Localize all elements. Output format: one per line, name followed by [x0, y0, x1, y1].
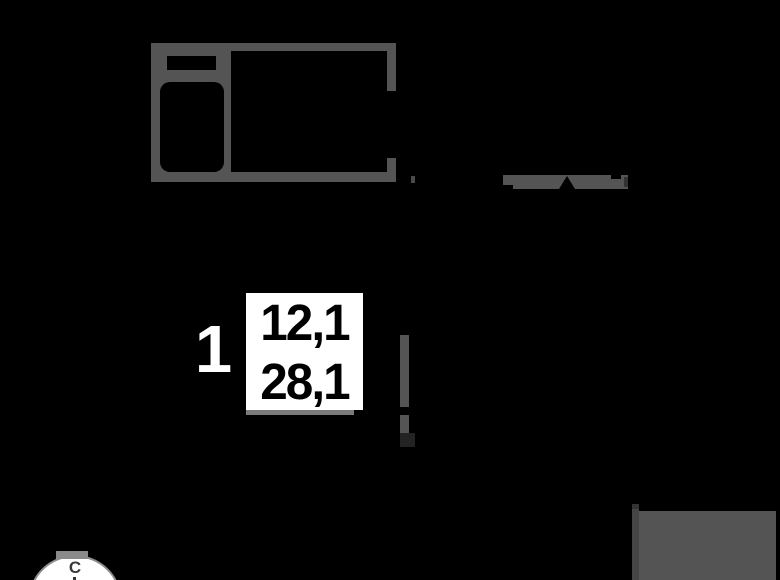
stairs-notch-left — [503, 185, 513, 189]
partition-wall-upper — [400, 335, 409, 407]
wall-top — [231, 43, 396, 51]
wall-right-lower — [387, 158, 396, 182]
living-area-value: 12,1 — [248, 293, 361, 352]
area-box-shadow — [246, 410, 354, 415]
wall-right-upper — [387, 51, 396, 91]
wall-stub-outside — [411, 176, 415, 183]
partition-wall-lower — [400, 415, 409, 433]
bathroom-room — [160, 82, 224, 172]
shaft-opening — [167, 56, 216, 70]
unit-area-box: 12,1 28,1 — [246, 293, 363, 410]
total-area-value: 28,1 — [248, 352, 361, 411]
stairs-arrow-icon — [559, 176, 575, 189]
stairs-icon — [503, 175, 628, 189]
core-wall-strip-tip — [632, 504, 639, 509]
wall-bottom — [231, 172, 396, 182]
stairs-tail — [624, 177, 628, 187]
compass-north-label: С — [62, 557, 88, 579]
partition-wall-tip — [400, 433, 415, 447]
building-core-block — [639, 511, 776, 580]
floor-plan-canvas: 1 12,1 28,1 С — [0, 0, 780, 580]
unit-number: 1 — [190, 316, 236, 382]
plan-left-walls — [151, 43, 231, 182]
stairs-notch-right — [611, 175, 621, 179]
core-wall-strip — [632, 504, 639, 580]
